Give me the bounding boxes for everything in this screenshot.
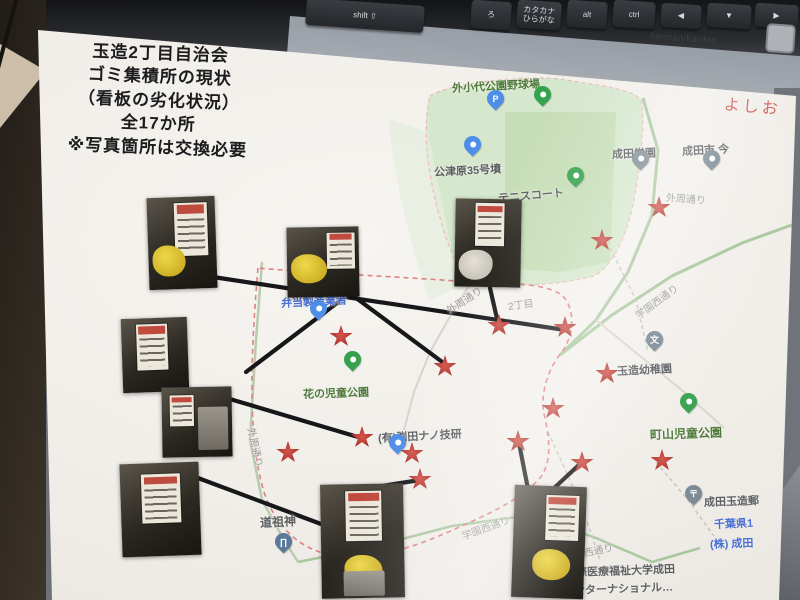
pin-dot <box>395 440 401 446</box>
pin-dot <box>686 399 692 405</box>
map-label: (株) 成田 <box>710 534 754 552</box>
site-photo <box>146 196 217 290</box>
pin-dot <box>573 173 579 179</box>
map-pin: 文 <box>642 327 666 351</box>
map-label: 町山児童公園 <box>650 423 723 443</box>
site-photo <box>121 317 190 393</box>
printed-map-sheet: 玉造2丁目自治会 ゴミ集積所の現状 （看板の劣化状況） 全17か所 ※写真箇所は… <box>0 0 800 600</box>
keyboard-key: ◀ <box>660 3 702 30</box>
photo-yellow <box>291 254 328 284</box>
pin-dot <box>540 92 546 98</box>
pin-glyph: ∏ <box>275 533 292 550</box>
photo-sign <box>140 473 181 523</box>
site-photo <box>286 226 359 297</box>
survey-title: 玉造2丁目自治会 ゴミ集積所の現状 （看板の劣化状況） 全17か所 ※写真箇所は… <box>48 38 270 163</box>
fingerprint-sensor <box>765 23 796 54</box>
site-photo <box>511 485 587 599</box>
map-label: 外周通り <box>665 189 706 207</box>
site-photo <box>454 198 522 287</box>
map-label: 花の児童公園 <box>303 384 370 402</box>
handwritten-name: よしお <box>723 91 782 120</box>
photo-sign <box>545 495 580 541</box>
photo-of-survey-map-on-desk: shift ⇧ろカタカナ ひらがなaltctrl◀▼▶ harman/kardo… <box>0 0 800 600</box>
site-photo <box>320 483 405 598</box>
photo-yellow <box>532 548 571 581</box>
pin-dot <box>350 357 356 363</box>
site-photo <box>119 462 201 558</box>
photo-sign <box>170 395 194 426</box>
map-pin: P <box>483 86 507 110</box>
keyboard-key: alt <box>566 0 608 29</box>
map-pin: 〒 <box>681 481 705 505</box>
map-label: 成田玉造郵 <box>704 492 760 510</box>
photo-sign <box>345 490 382 541</box>
photo-bin <box>343 570 385 596</box>
pin-dot <box>709 156 715 162</box>
pin-glyph: 〒 <box>685 485 702 502</box>
pin-dot <box>470 142 476 148</box>
photo-yellow <box>152 245 186 277</box>
keyboard-key: カタカナ ひらがな <box>516 0 562 31</box>
pin-glyph: P <box>487 90 504 107</box>
pin-dot <box>638 156 644 162</box>
pin-dot <box>316 306 322 312</box>
photo-bin <box>198 406 228 450</box>
map-label: 千葉県1 <box>714 515 754 532</box>
pin-glyph: 文 <box>646 331 663 348</box>
photo-sign <box>135 323 168 370</box>
keyboard-key: ctrl <box>612 0 656 29</box>
map-label: 道祖神 <box>260 512 297 531</box>
photo-sign <box>475 203 505 246</box>
map-pin: ∏ <box>271 529 295 553</box>
photo-sign <box>327 232 355 269</box>
site-photo <box>161 386 232 457</box>
map-label: 玉造幼稚園 <box>617 360 673 379</box>
keyboard-key: ろ <box>470 0 512 30</box>
keyboard-key: ▼ <box>706 2 752 29</box>
photo-bags <box>458 250 493 281</box>
